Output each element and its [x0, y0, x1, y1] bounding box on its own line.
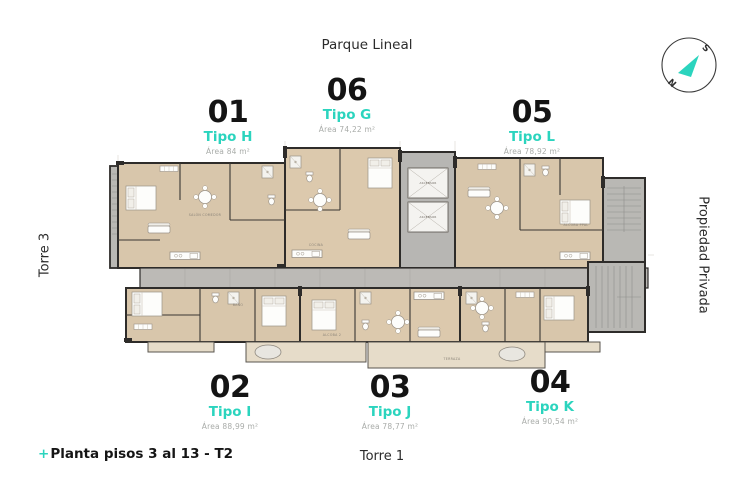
- torre-1-label: Torre 1: [360, 449, 404, 464]
- shower-glyph: [262, 166, 273, 178]
- unit-area: Área 78,77 m²: [362, 423, 418, 431]
- unit-callout-06: 06 Tipo G Área 74,22 m²: [319, 76, 375, 133]
- compass-arrow-icon: [678, 55, 699, 77]
- floor-caption: +Planta pisos 3 al 13 - T2: [38, 446, 233, 462]
- unit-number: 04: [522, 368, 578, 398]
- shower-glyph: [290, 156, 301, 168]
- wardrobe-glyph: [478, 164, 496, 170]
- unit-type: Tipo L: [504, 131, 560, 145]
- wardrobe-glyph: [134, 324, 152, 330]
- bed-glyph: [262, 296, 286, 326]
- wardrobe-glyph: [160, 166, 178, 172]
- toilet-glyph: [306, 172, 313, 182]
- sofa-glyph: [418, 327, 440, 337]
- stairwell-right-bottom: [588, 262, 645, 332]
- unit-callout-03: 03 Tipo J Área 78,77 m²: [362, 373, 418, 430]
- room-label-cocina: COCINA: [309, 243, 324, 247]
- kitchen-glyph: [560, 252, 590, 260]
- parque-lineal-label: Parque Lineal: [322, 37, 413, 53]
- toilet-glyph: [482, 322, 489, 332]
- unit-type: Tipo I: [202, 406, 258, 420]
- torre-3-label: Torre 3: [38, 233, 53, 277]
- unit-area: Área 84 m²: [204, 148, 253, 156]
- shower-glyph: [360, 292, 371, 304]
- unit-type: Tipo G: [319, 109, 375, 123]
- room-label-bano: BAÑO: [233, 302, 244, 307]
- unit-number: 03: [362, 373, 418, 403]
- compass-icon: S N: [658, 33, 720, 97]
- kitchen-glyph: [170, 252, 200, 260]
- tub-glyph: [499, 347, 525, 361]
- compass-south-label: S: [699, 43, 711, 55]
- unit-area: Área 88,99 m²: [202, 423, 258, 431]
- room-label-alcoba-2: ALCOBA 2: [323, 333, 342, 337]
- bed-glyph: [368, 158, 392, 188]
- room-label-salon: SALÓN COMEDOR: [189, 212, 222, 217]
- unit-callout-01: 01 Tipo H Área 84 m²: [204, 98, 253, 155]
- room-label-ascensor-1: ASCENSOR: [419, 181, 436, 185]
- shower-glyph: [524, 164, 535, 176]
- bed-glyph: [312, 300, 336, 330]
- toilet-glyph: [362, 320, 369, 330]
- bed-glyph: [126, 186, 156, 210]
- room-label-ascensor-2: ASCENSOR: [419, 215, 436, 219]
- bed-glyph: [560, 200, 590, 224]
- unit-type: Tipo H: [204, 131, 253, 145]
- kitchen-glyph: [414, 292, 444, 300]
- brochure-page: ASCENSOR ASCENSOR: [0, 0, 750, 500]
- bed-glyph: [132, 292, 162, 316]
- sofa-glyph: [348, 229, 370, 239]
- unit-number: 01: [204, 98, 253, 128]
- unit-type: Tipo K: [522, 401, 578, 415]
- unit-number: 05: [504, 98, 560, 128]
- room-label-alcoba-ppal: ALCOBA PPAL: [564, 223, 589, 227]
- sofa-glyph: [148, 223, 170, 233]
- unit-type: Tipo J: [362, 406, 418, 420]
- tub-glyph: [255, 345, 281, 359]
- room-label-terraza: TERRAZA: [443, 357, 461, 361]
- unit-area: Área 74,22 m²: [319, 126, 375, 134]
- floor-caption-text: Planta pisos 3 al 13 - T2: [50, 446, 233, 462]
- toilet-glyph: [268, 195, 275, 205]
- toilet-glyph: [542, 166, 549, 176]
- shower-glyph: [466, 292, 477, 304]
- unit-area: Área 90,54 m²: [522, 418, 578, 426]
- toilet-glyph: [212, 293, 219, 303]
- stairwell-right-top: [603, 178, 645, 268]
- propiedad-privada-label: Propiedad Privada: [696, 196, 711, 314]
- unit-number: 02: [202, 373, 258, 403]
- corridor: [140, 268, 648, 288]
- unit-callout-04: 04 Tipo K Área 90,54 m²: [522, 368, 578, 425]
- plus-icon: +: [38, 446, 49, 462]
- kitchen-glyph: [292, 250, 322, 258]
- wardrobe-glyph: [516, 292, 534, 298]
- bed-glyph: [544, 296, 574, 320]
- sofa-glyph: [468, 187, 490, 197]
- unit-area: Área 78,92 m²: [504, 148, 560, 156]
- unit-number: 06: [319, 76, 375, 106]
- unit-callout-02: 02 Tipo I Área 88,99 m²: [202, 373, 258, 430]
- unit-callout-05: 05 Tipo L Área 78,92 m²: [504, 98, 560, 155]
